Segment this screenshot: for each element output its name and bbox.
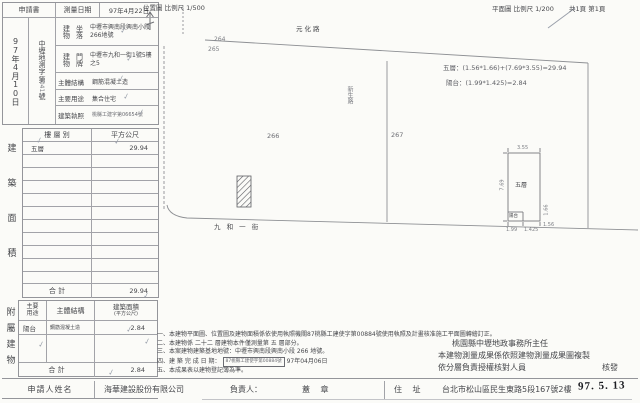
dim-ext-height: 1.66: [544, 204, 550, 215]
annex-total-label: 合 計: [19, 363, 95, 377]
area-col-sqm: 平方公尺: [92, 129, 158, 142]
area-empty-cell: [23, 207, 92, 220]
area-empty-cell: [92, 220, 158, 233]
area-total-label: 合 計: [23, 284, 92, 298]
annex-col-use-b: 用途: [26, 311, 38, 318]
area-empty-cell: [92, 181, 158, 194]
row-lot-label-a: 建物: [62, 25, 72, 39]
area-empty-cell: [23, 220, 92, 233]
floor-plan-balcony-label: 陽台: [509, 213, 518, 219]
area-table: 樓 層 別 平方公尺 五層 29.94 合 計 29.94: [22, 128, 159, 298]
row-license-value: 桃縣工建字第06654號: [92, 106, 156, 124]
annex-table-side-label: 附屬建物: [4, 307, 17, 371]
divider: [94, 381, 95, 399]
applicant-row: 申請人姓名 海華建設股份有限公司 負責人： 蓋 章 住 址 台北市松山區民生東路…: [2, 378, 638, 400]
dim-left: 7.69: [500, 179, 506, 190]
area-empty-cell: [23, 233, 92, 246]
area-empty-cell: [92, 168, 158, 181]
applicant-manager-label: 負責人：: [230, 379, 290, 399]
dim-top: 3.55: [517, 145, 528, 151]
divider: [2, 398, 158, 399]
annex-total-value: 2.84: [95, 363, 157, 377]
survey-result-document: 申請書 測量日期 97年4月22日 97年4月10日 中壢地測字 第 0415 …: [0, 0, 640, 403]
building-footprint-hatch: [237, 176, 251, 207]
row-lot-label-b: 坐落: [75, 25, 85, 39]
license-stamp-box: 87桃縣工建使字第00884號: [223, 357, 285, 367]
row-use-label: 主要用途: [58, 90, 90, 106]
area-empty-cell: [92, 194, 158, 207]
area-empty-cell: [23, 181, 92, 194]
page-count: 共1頁 第1頁: [569, 3, 605, 13]
area-row-value: 29.94: [92, 142, 158, 155]
area-empty-cell: [23, 194, 92, 207]
applicant-seal-label: 蓋 章: [302, 379, 352, 399]
note-line-1: 一、本建物平面圖、位置圖及建物面積係依使用執照機關87桃縣工建使字第00884號…: [157, 331, 637, 340]
road-side-label: 新生路: [345, 86, 354, 104]
official-issue-label: 核發: [602, 362, 618, 373]
floor-plan-title: 平面圖 比例尺 1/200: [492, 3, 554, 13]
dim-ext-width: 1.56: [543, 222, 554, 228]
area-row-floor: 五層: [23, 142, 92, 155]
area-empty-cell: [92, 272, 158, 284]
area-empty-cell: [23, 168, 92, 181]
area-empty-cell: [92, 207, 158, 220]
area-empty-cell: [92, 155, 158, 168]
lot-265-label: 265: [208, 46, 219, 53]
area-empty-cell: [23, 259, 92, 272]
road-top-label: 元化路: [296, 23, 322, 33]
floor-plan-room-label: 五層: [515, 180, 527, 189]
row-door-label-a: 建物: [62, 53, 72, 67]
receipt-office: 中壢地測字: [37, 40, 47, 75]
official-title-line: 桃園縣中壢地政事務所主任: [452, 338, 548, 349]
lot-266-label: 266: [267, 132, 279, 140]
area-col-floor: 樓 層 別: [23, 129, 92, 142]
area-empty-cell: [23, 155, 92, 168]
divider: [384, 381, 385, 399]
site-plan-title: 位置圖 比例尺 1/500: [143, 2, 205, 12]
received-date-stamp: 97. 5. 13: [578, 379, 626, 392]
annex-empty-cell: [47, 335, 95, 363]
annex-row-structure: 鋼筋混凝土造: [47, 321, 95, 335]
annex-row-use: 陽台: [19, 321, 47, 335]
row-door-label-b: 門牌: [75, 53, 85, 67]
area-empty-cell: [23, 246, 92, 259]
applicant-address-label: 住 址: [394, 379, 440, 399]
note-line-4-date: 97年04月06日: [287, 357, 328, 366]
note-line-2: 二、本建物係 二十二 層建物本件僅測量第 五 層部分。: [157, 340, 637, 349]
receipt-date: 97年4月10日: [10, 37, 21, 106]
official-statement-line: 本建物測量成果係依照建物測量成果圖複製: [438, 350, 590, 361]
lot-267-label: 267: [391, 131, 403, 139]
road-bottom-label: 九 和 一 街: [214, 221, 260, 231]
area-empty-cell: [92, 246, 158, 259]
area-empty-cell: [23, 272, 92, 284]
balcony-area-calculation: 陽台：(1.99*1.425)=2.84: [446, 77, 527, 87]
dim-balcony-depth: 1.425: [524, 227, 538, 233]
annex-col-structure: 主體結構: [47, 301, 95, 321]
divider: [202, 399, 632, 400]
row-door-value: 中壢市九和一街1號5樓之5: [90, 46, 156, 73]
application-header: 申請書: [3, 3, 56, 18]
note-line-5: 五、本成果表以建物登記簿為準。: [157, 367, 637, 376]
row-license-label: 建築執照: [58, 106, 90, 124]
area-empty-cell: [92, 259, 158, 272]
applicant-label: 申請人姓名: [10, 379, 90, 399]
receipt-no-digits: 0415: [39, 81, 46, 96]
form-table: 申請書 測量日期 97年4月22日 97年4月10日 中壢地測字 第 0415 …: [2, 2, 159, 125]
applicant-name: 海華建設股份有限公司: [104, 379, 234, 399]
area-empty-cell: [92, 233, 158, 246]
area-table-side-label: 建築面積: [5, 143, 18, 283]
floor-area-calculation: 五層：(1.56*1.66)+(7.69*3.55)=29.94: [443, 62, 567, 72]
annex-col-area-2: (平方公尺): [114, 311, 138, 317]
survey-date-label: 測量日期: [56, 3, 100, 18]
row-structure-label: 主體結構: [58, 73, 90, 90]
lot-264-label: 264: [214, 36, 225, 43]
annex-table: 主要 用途 主體結構 建築面積 (平方公尺) 陽台 鋼筋混凝土造 2.84 合 …: [18, 300, 158, 377]
dim-balcony-width: 1.99: [506, 227, 517, 233]
site-plan-boundary: [164, 8, 638, 230]
official-delegation-line: 依分層負責授權核對人員: [438, 362, 526, 373]
note-line-4-prefix: 四、建 築 完 成 日 期：: [157, 357, 221, 366]
